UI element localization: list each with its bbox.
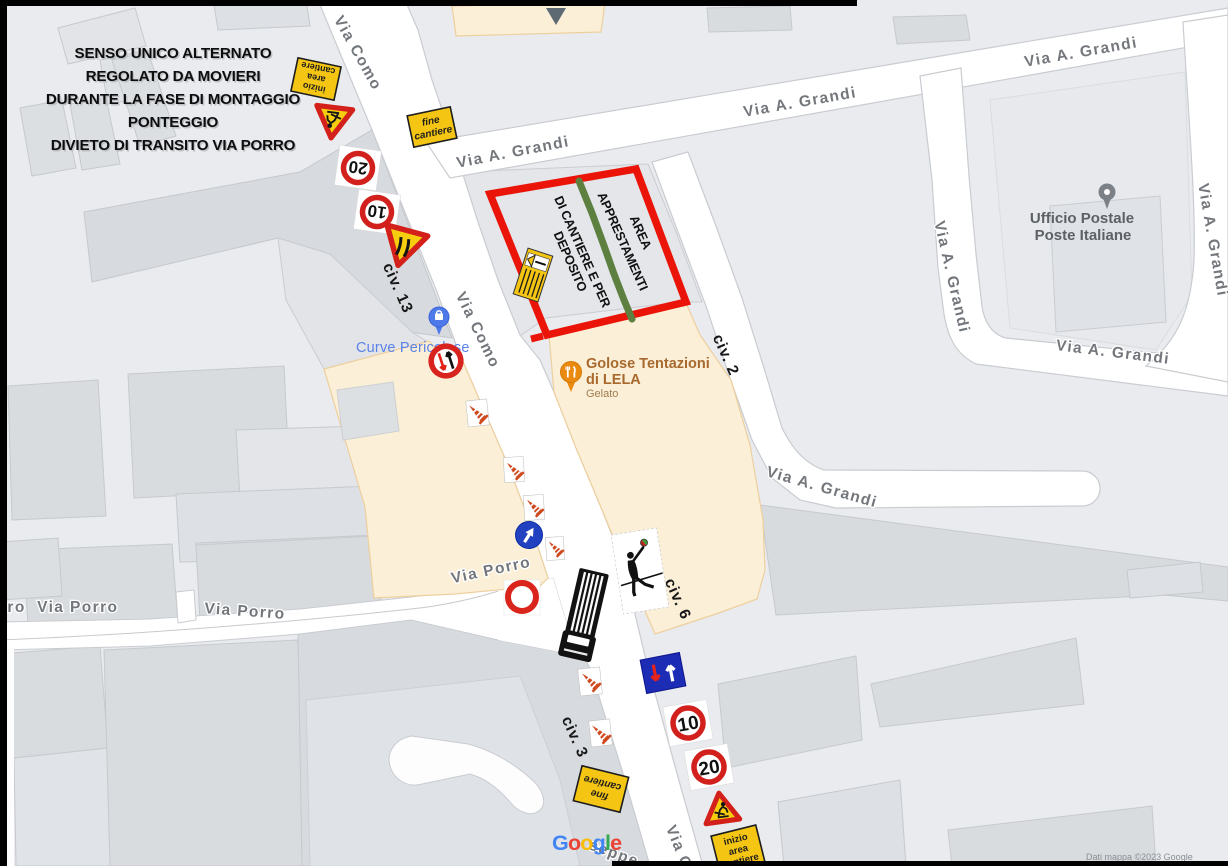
svg-text:SENSO UNICO ALTERNATO: SENSO UNICO ALTERNATO [75, 45, 272, 62]
svg-text:Ufficio Postale: Ufficio Postale [1030, 210, 1134, 227]
svg-text:10: 10 [676, 712, 700, 736]
svg-text:REGOLATO DA MOVIERI: REGOLATO DA MOVIERI [86, 68, 261, 85]
svg-text:DIVIETO DI TRANSITO VIA PORRO: DIVIETO DI TRANSITO VIA PORRO [51, 137, 296, 154]
svg-text:Google: Google [552, 831, 622, 855]
svg-text:Poste Italiane: Poste Italiane [1035, 227, 1132, 244]
svg-text:Gelato: Gelato [586, 388, 618, 400]
svg-text:DURANTE LA FASE DI MONTAGGIO: DURANTE LA FASE DI MONTAGGIO [46, 91, 301, 108]
svg-text:10: 10 [366, 201, 387, 222]
svg-text:20: 20 [347, 157, 368, 178]
svg-text:Dati mappa ©2023 Google: Dati mappa ©2023 Google [1086, 852, 1193, 862]
svg-text:rro Via Porro: rro Via Porro [0, 599, 118, 616]
svg-text:PONTEGGIO: PONTEGGIO [128, 114, 219, 131]
svg-text:di LELA: di LELA [586, 372, 641, 388]
svg-text:Golose Tentazioni: Golose Tentazioni [586, 356, 710, 372]
svg-text:20: 20 [697, 756, 721, 780]
